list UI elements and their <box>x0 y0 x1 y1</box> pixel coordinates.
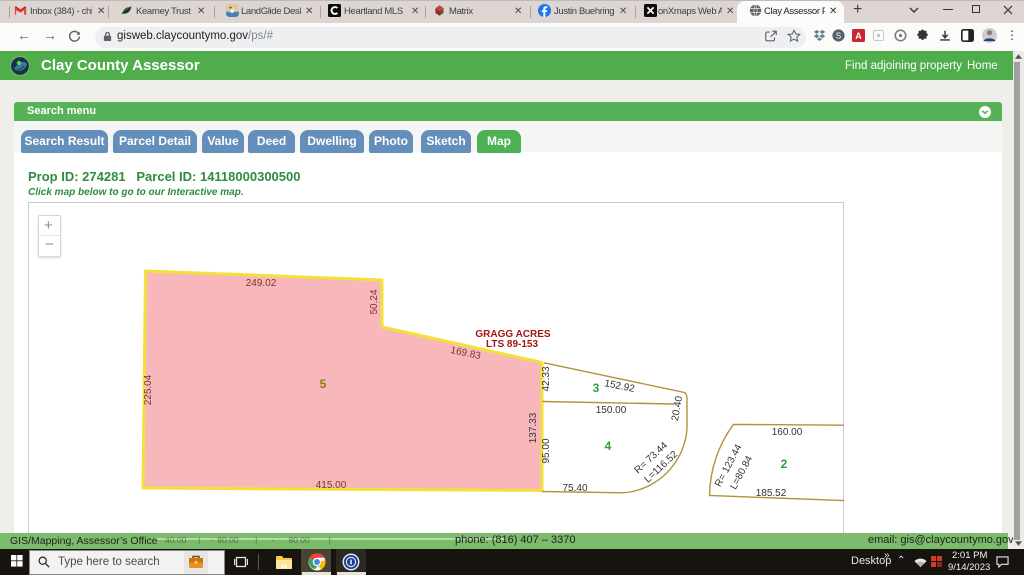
svg-text:185.52: 185.52 <box>756 488 787 499</box>
svg-text:150.00: 150.00 <box>596 405 627 416</box>
svg-text:LTS 89-153: LTS 89-153 <box>486 339 538 350</box>
svg-text:95.00: 95.00 <box>541 438 552 463</box>
svg-text:3: 3 <box>593 381 600 395</box>
svg-text:225.04: 225.04 <box>143 374 154 405</box>
svg-text:4: 4 <box>605 439 612 453</box>
svg-text:42.33: 42.33 <box>541 366 552 391</box>
svg-text:75.40: 75.40 <box>562 483 587 494</box>
svg-text:249.02: 249.02 <box>246 278 277 289</box>
svg-text:415.00: 415.00 <box>316 480 347 491</box>
svg-text:2: 2 <box>781 457 788 471</box>
svg-text:A: A <box>855 31 862 41</box>
svg-text:160.00: 160.00 <box>772 427 803 438</box>
svg-text:S: S <box>836 31 842 40</box>
svg-text:137.33: 137.33 <box>528 412 539 443</box>
svg-text:20.40: 20.40 <box>670 395 685 422</box>
svg-text:5: 5 <box>320 377 327 391</box>
svg-text:50.24: 50.24 <box>369 289 380 314</box>
